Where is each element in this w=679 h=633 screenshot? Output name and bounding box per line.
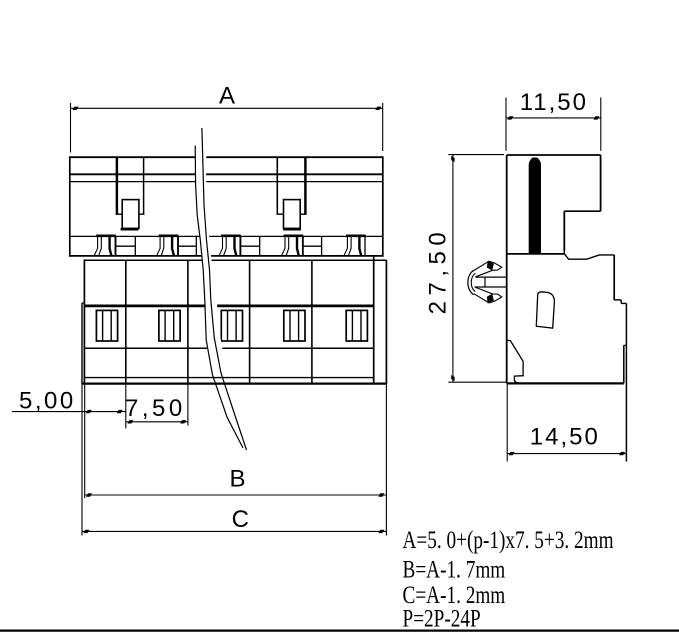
svg-text:B=A-1. 7mm: B=A-1. 7mm (403, 555, 506, 583)
svg-text:P=2P-24P: P=2P-24P (403, 604, 481, 632)
svg-text:14,50: 14,50 (530, 423, 600, 450)
svg-text:27,50: 27,50 (425, 227, 452, 315)
svg-text:7,50: 7,50 (125, 395, 186, 422)
svg-text:C: C (232, 506, 249, 533)
svg-text:5,00: 5,00 (19, 388, 76, 415)
svg-text:A=5. 0+(p-1)x7. 5+3. 2mm: A=5. 0+(p-1)x7. 5+3. 2mm (403, 525, 614, 553)
svg-text:11,50: 11,50 (520, 89, 588, 116)
svg-text:A: A (219, 83, 235, 110)
svg-text:B: B (229, 465, 245, 492)
